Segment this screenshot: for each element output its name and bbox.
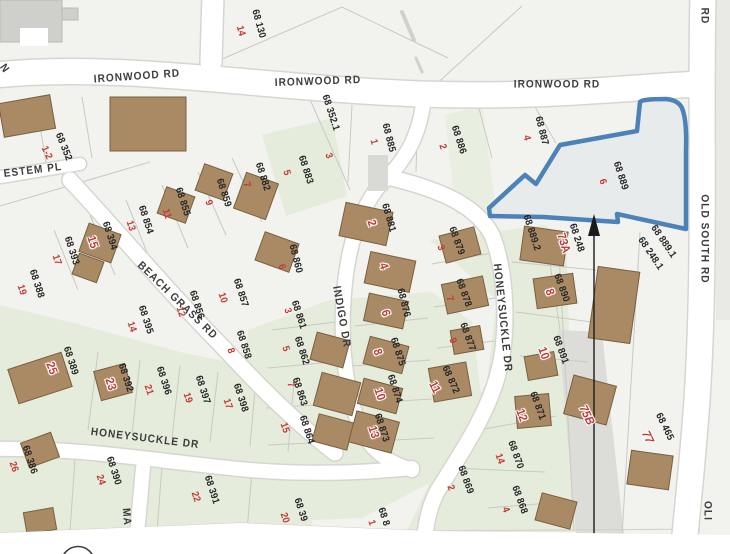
parcel-number-label: 68 874 (385, 374, 404, 405)
house-number-label: 25 (44, 360, 59, 376)
house-number-label: 14 (125, 321, 138, 334)
house-number-label: 4 (377, 261, 390, 271)
house-number-label: 17 (50, 254, 63, 267)
parcel-number-label: 68 397 (193, 375, 212, 406)
house-number-label: 6 (596, 178, 607, 186)
parcel-number-label: 68 398 (231, 383, 250, 414)
house-number-label: 4 (521, 134, 532, 141)
house-number-label: 5 (279, 345, 290, 353)
house-number-label: 10 (372, 386, 387, 401)
house-number-label: 13 (124, 220, 137, 233)
parcel-number-label: 68 396 (154, 366, 173, 397)
house-number-label: 8 (224, 347, 235, 355)
house-number-label: 8 (371, 347, 384, 357)
parcel-number-label: 68 889 (611, 161, 630, 192)
street-label: MA (120, 508, 133, 527)
house-number-label: 15 (85, 234, 100, 249)
parcel-number-label: 68 876 (395, 288, 412, 319)
house-number-label: 6 (275, 263, 286, 271)
street-label: INDIGO DR (330, 285, 352, 348)
parcel-number-label: 68 862 (292, 336, 311, 367)
parcel-number-label: 68 887 (533, 116, 550, 147)
parcel-number-label: 68 875 (388, 337, 407, 368)
street-label: HONEYSUCKLE DR (90, 427, 200, 451)
parcel-number-label: 68 39 (292, 497, 309, 523)
house-number-label: 3 (322, 152, 333, 160)
parcel-number-label: 68 882 (253, 162, 272, 193)
parcel-number-label: 68 872 (439, 365, 460, 396)
map-labels: IRONWOOD RDIRONWOOD RDIRONWOOD RDRDOLD S… (0, 0, 730, 554)
parcel-number-label: 68 388 (27, 269, 46, 300)
house-number-label: 19 (15, 284, 28, 297)
parcel-number-label: 68 883 (296, 155, 315, 186)
parcel-number-label: 68 858 (234, 330, 253, 361)
house-number-label: 10 (536, 345, 551, 361)
parcel-number-label: 68 889.2 (520, 214, 541, 253)
parcel-number-label: 68 392 (116, 363, 135, 394)
street-label: OLD SOUTH RD (699, 194, 710, 283)
house-number-label: 14 (234, 25, 246, 37)
parcel-number-label: 68 393 (62, 236, 81, 267)
house-number-label: 24 (94, 474, 107, 487)
parcel-number-label: 68 8 (375, 507, 390, 528)
parcel-number-label: 68 879 (446, 226, 465, 257)
house-number-label: 10 (216, 292, 229, 305)
parcel-number-label: 68 854 (136, 205, 155, 236)
parcel-number-label: 68 869 (455, 465, 474, 496)
house-number-label: 77 (640, 429, 656, 445)
parcel-number-label: 68 857 (231, 278, 250, 309)
house-number-label: 75B (577, 403, 597, 426)
house-number-label: 26 (7, 461, 20, 474)
house-number-label: 8 (543, 287, 556, 297)
parcel-number-label: 68 861 (289, 300, 308, 331)
parcel-number-label: 68 394 (100, 221, 119, 252)
house-number-label: 2 (436, 143, 447, 151)
house-number-label: 19 (181, 392, 194, 405)
parcel-number-label: 68 868 (509, 485, 528, 516)
house-number-label: 11 (160, 208, 173, 220)
parcel-number-label: 68 352 (53, 132, 73, 163)
house-number-label: 4 (499, 506, 510, 514)
house-number-label: 23 (103, 376, 118, 391)
street-label: N (0, 62, 11, 75)
parcel-number-label: 68 130 (249, 9, 266, 40)
house-number-label: 17 (221, 398, 234, 411)
house-number-label: 7 (443, 295, 454, 303)
house-number-label: 2 (444, 484, 455, 492)
parcel-number-label: 68 891 (550, 335, 569, 366)
parcel-number-label: 68 855 (173, 187, 192, 218)
street-label: IRONWOOD RD (275, 75, 362, 89)
house-number-label: 14 (493, 452, 506, 465)
house-number-label: 1 (365, 519, 376, 527)
parcel-number-label: 68 886 (449, 125, 468, 156)
house-number-label: 1-2 (39, 145, 54, 161)
house-number-label: 9 (446, 337, 457, 345)
parcel-number-label: 68 389 (61, 346, 80, 377)
house-number-label: 1 (368, 138, 379, 145)
parcel-number-label: 68 877 (457, 322, 476, 353)
house-number-label: 11 (427, 379, 443, 395)
house-number-label: 6 (379, 308, 392, 318)
street-label: OLI (702, 501, 713, 521)
house-number-label: 20 (278, 512, 291, 525)
parcel-number-label: 68 885 (380, 123, 397, 154)
house-number-label: 22 (189, 491, 202, 504)
parcel-number-label: 68 870 (505, 440, 524, 471)
house-number-label: 21 (142, 384, 155, 397)
street-label: HONEYSUCKLE DR (491, 263, 513, 373)
street-label: ESTEM PL (3, 162, 63, 180)
parcel-number-label: 68 391 (202, 475, 221, 506)
map-canvas[interactable]: IRONWOOD RDIRONWOOD RDIRONWOOD RDRDOLD S… (0, 0, 730, 554)
parcel-number-label: 68 881 (379, 203, 397, 234)
street-label: IRONWOOD RD (514, 80, 600, 91)
street-label: RD (699, 8, 710, 25)
house-number-label: 3 (434, 244, 445, 252)
house-number-label: 3 (281, 307, 292, 315)
parcel-number-label: 68 352.1 (319, 94, 340, 133)
house-number-label: 2 (365, 218, 378, 228)
house-number-label: 7 (240, 181, 251, 189)
street-label: IRONWOOD RD (93, 68, 180, 85)
house-number-label: 15 (278, 422, 291, 435)
house-number-label: 12 (514, 407, 529, 423)
parcel-number-label: 68 860 (287, 244, 304, 275)
parcel-number-label: 68 864 (297, 415, 316, 446)
house-number-label: 9 (202, 199, 213, 207)
parcel-number-label: 68 395 (136, 305, 155, 336)
parcel-number-label: 68 386 (20, 445, 39, 476)
house-number-label: 5 (280, 169, 291, 177)
parcel-number-label: 68 878 (453, 278, 472, 309)
parcel-number-label: 68 859 (214, 178, 233, 209)
